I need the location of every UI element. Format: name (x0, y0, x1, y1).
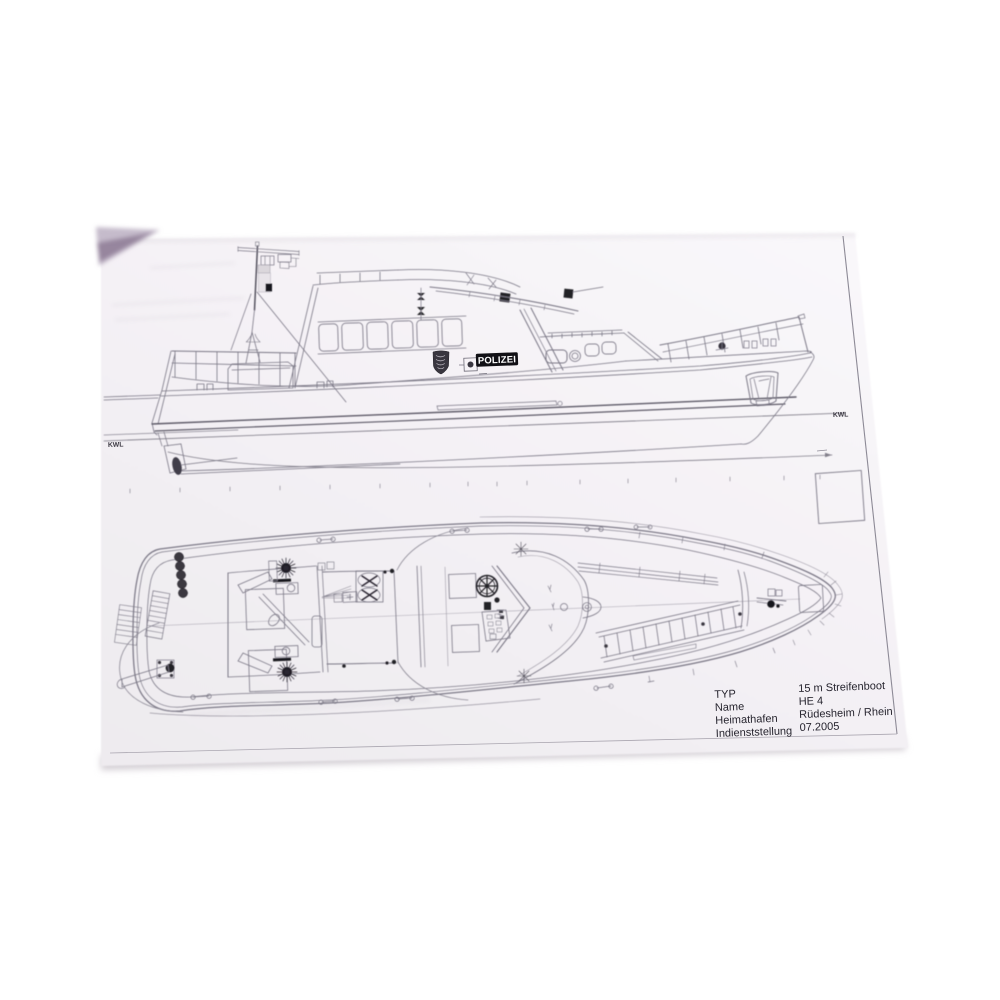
svg-text:HE 4: HE 4 (799, 695, 824, 708)
svg-text:KWL: KWL (108, 441, 124, 449)
svg-text:KWL: KWL (833, 411, 849, 419)
svg-text:TYP: TYP (714, 688, 736, 701)
svg-text:07.2005: 07.2005 (799, 721, 839, 734)
svg-text:Heimathafen: Heimathafen (715, 713, 778, 727)
svg-text:POLIZEI: POLIZEI (478, 354, 517, 366)
svg-text:Name: Name (715, 701, 745, 714)
